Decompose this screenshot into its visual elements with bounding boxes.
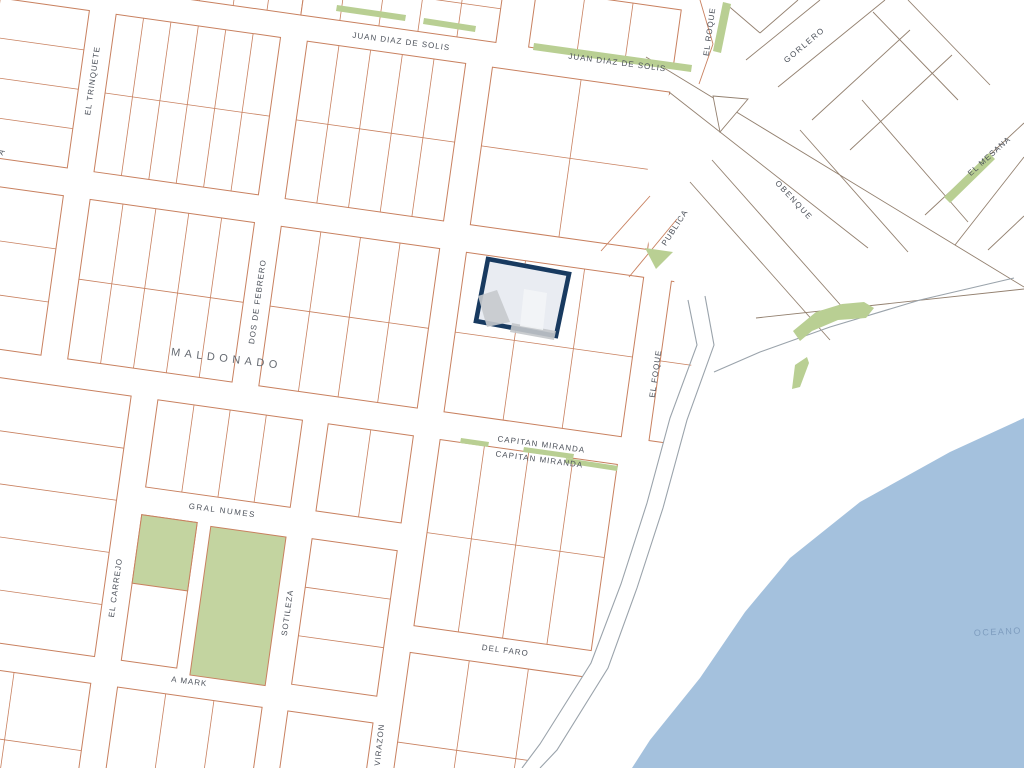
watermark-inner <box>520 289 547 330</box>
park-block-1-green <box>132 515 197 591</box>
map-viewport[interactable]: JUAN DIAZ DE SOLISJUAN DIAZ DE SOLISEL T… <box>0 0 1024 768</box>
cadastral-map: JUAN DIAZ DE SOLISJUAN DIAZ DE SOLISEL T… <box>0 0 1024 768</box>
